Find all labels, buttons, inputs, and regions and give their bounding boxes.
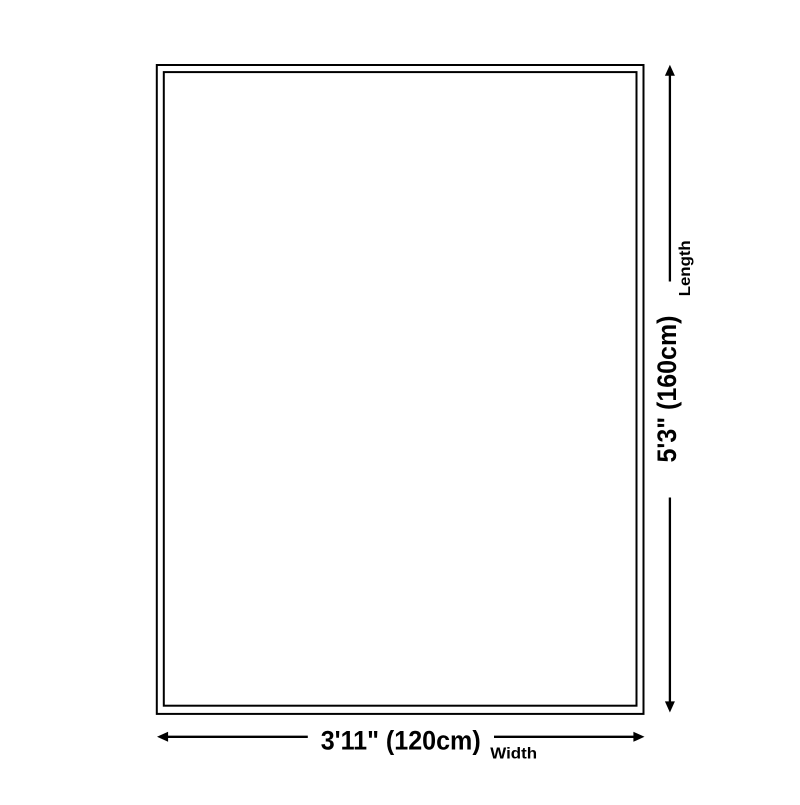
svg-text:Length: Length	[677, 240, 694, 296]
svg-text:3'11" (120cm): 3'11" (120cm)	[321, 725, 481, 755]
svg-text:5'3" (160cm): 5'3" (160cm)	[652, 316, 682, 463]
svg-text:Width: Width	[490, 745, 537, 762]
